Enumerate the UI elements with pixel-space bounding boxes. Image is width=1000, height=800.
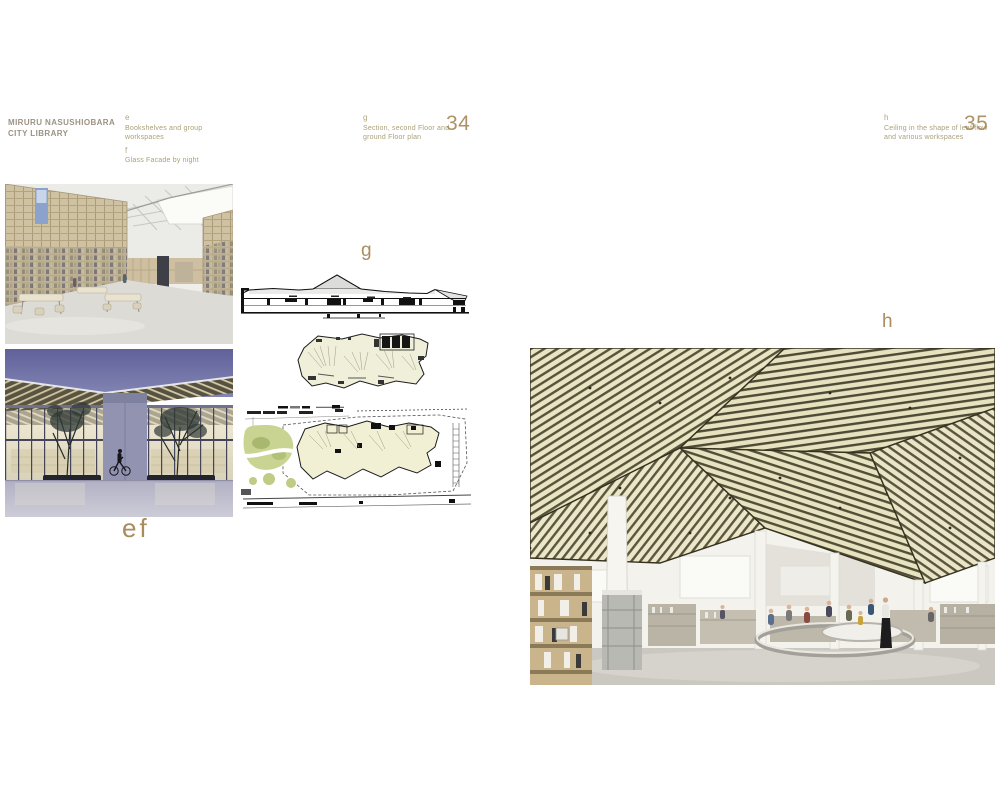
parking-strip [453,423,459,487]
caption-f-line1: Glass Facade by night [125,156,235,166]
figure-label-ef: ef [122,513,150,544]
caption-e-line1: Bookshelves and group [125,124,235,134]
ground-floor-plan [239,403,475,515]
caption-e-line2: workspaces [125,133,235,143]
photo-glass-facade-night [5,349,233,517]
kiosk [157,256,169,290]
photo-bookshelves-interior [5,184,233,344]
figure-label-h: h [882,311,894,333]
figure-label-g: g [361,240,373,262]
page-number-left: 34 [446,112,470,136]
metal-shelf [602,590,642,670]
page-number-right: 35 [964,112,988,136]
caption-ef: e Bookshelves and group workspaces f Gla… [125,113,235,166]
header-line2: CITY LIBRARY [8,129,115,140]
book-spread: MIRURU NASUSHIOBARA CITY LIBRARY e Books… [0,0,1000,800]
building-footprint [297,421,439,479]
books-right [203,240,233,296]
header-line1: MIRURU NASUSHIOBARA [8,118,115,129]
photo-leaf-ceiling-hall [530,348,995,685]
section-drawing [239,268,472,322]
header-title: MIRURU NASUSHIOBARA CITY LIBRARY [8,118,115,139]
road-line [243,495,471,499]
caption-f-key: f [125,146,235,156]
section-walls [267,299,465,318]
caption-e-key: e [125,113,235,123]
foreground-shelf [530,566,592,685]
